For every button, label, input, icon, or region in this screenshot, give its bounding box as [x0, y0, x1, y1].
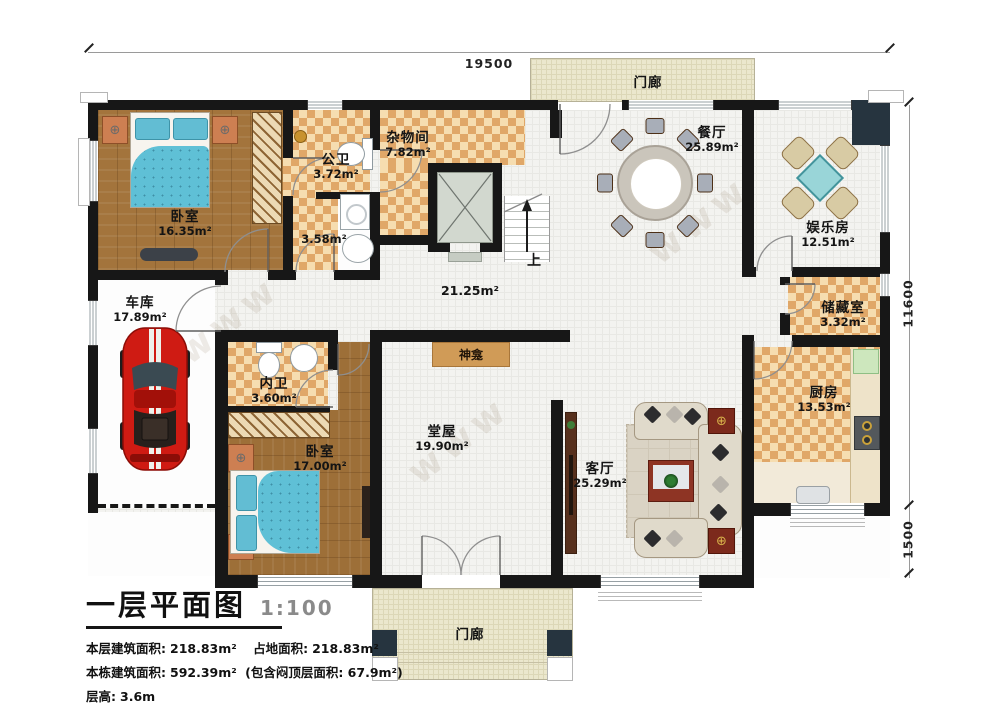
nightstand: ⊕ — [212, 116, 238, 144]
floor-height-value: 3.6m — [120, 689, 155, 704]
elevator-wall — [480, 243, 502, 252]
nightstand-knob: ⊕ — [229, 445, 253, 471]
land-area-label: 占地面积: — [253, 641, 308, 656]
wall — [780, 277, 790, 285]
room-label-bedroom1: 卧室 16.35m² — [130, 210, 240, 238]
burner — [862, 421, 872, 431]
plant — [664, 474, 678, 488]
dining-table — [617, 145, 693, 221]
blanket — [258, 471, 319, 553]
corner-column — [852, 100, 890, 145]
room-area: 25.29m² — [545, 477, 655, 490]
floor-area-label: 本层建筑面积: — [86, 641, 166, 656]
counter-board — [853, 349, 879, 374]
floor-plan: 19500 11600 1500 www www www — [0, 0, 1000, 706]
plan-title: 一层平面图 — [86, 582, 246, 624]
room-label-storage: 储藏室 3.32m² — [788, 301, 898, 329]
total-area-value: 592.39m² — [170, 665, 237, 680]
room-area: 16.35m² — [130, 225, 240, 238]
sink — [290, 344, 318, 372]
room-area: 13.53m² — [769, 401, 879, 414]
room-label-living: 客厅 25.29m² — [545, 462, 655, 490]
wall — [792, 335, 890, 347]
land-area-value: 218.83m² — [312, 641, 379, 656]
wall — [268, 270, 296, 280]
window — [790, 503, 865, 516]
room-area: 19.90m² — [387, 440, 497, 453]
room-name: 客厅 — [545, 462, 655, 477]
room-label-entertainment: 娱乐房 12.51m² — [773, 221, 883, 249]
toilet — [258, 352, 280, 378]
room-label-bedroom2: 卧室 17.00m² — [265, 445, 375, 473]
room-name: 储藏室 — [788, 301, 898, 316]
dimension-height-main: 11600 — [901, 274, 916, 334]
wardrobe — [228, 412, 330, 438]
wall — [228, 330, 338, 342]
window — [880, 145, 890, 233]
window-frame — [80, 92, 108, 103]
dimension-height-porch: 1500 — [901, 512, 916, 568]
pillow — [173, 118, 208, 140]
room-area: 17.89m² — [85, 311, 195, 324]
stairs-up-label: 上 — [520, 254, 548, 270]
window — [778, 100, 852, 110]
elevator-wall — [493, 163, 502, 252]
pillow — [236, 475, 257, 511]
dining-table-top — [630, 158, 682, 210]
title-block: 一层平面图 1:100 本层建筑面积:218.83m² 占地面积:218.83m… — [86, 582, 426, 705]
nightstand: ⊕ — [228, 444, 254, 472]
nightstand: ⊕ — [102, 116, 128, 144]
kitchen-sink — [796, 486, 830, 504]
tv — [362, 486, 370, 538]
garage-door — [98, 504, 215, 508]
room-label-dining: 餐厅 25.89m² — [657, 126, 767, 154]
wall — [334, 270, 380, 280]
room-area: 3.60m² — [219, 392, 329, 405]
wall — [283, 110, 293, 158]
room-name: 堂屋 — [387, 425, 497, 440]
area-row-1: 本层建筑面积:218.83m² 占地面积:218.83m² — [86, 638, 426, 657]
blanket — [131, 146, 209, 207]
window-sill — [598, 592, 702, 604]
room-area: 12.51m² — [773, 236, 883, 249]
room-name: 车库 — [85, 296, 195, 311]
room-name: 门廊 — [593, 76, 703, 91]
chair — [597, 174, 613, 193]
burner — [862, 435, 872, 445]
room-name: 内卫 — [219, 377, 329, 392]
window — [880, 273, 890, 297]
title-underline — [86, 626, 282, 629]
wall — [375, 235, 428, 245]
room-area: 3.58m² — [269, 233, 379, 246]
elevator-car — [437, 172, 493, 243]
area-row-2: 本栋建筑面积:592.39m² (包含闷顶层面积: 67.9m²) — [86, 662, 426, 681]
room-label-bath-annex: 3.58m² — [269, 233, 379, 246]
plant — [567, 421, 575, 429]
floor-area-value: 218.83m² — [170, 641, 237, 656]
elevator-sill — [448, 252, 482, 262]
chair — [697, 174, 713, 193]
room-name: 厨房 — [769, 386, 879, 401]
room-area: 3.32m² — [788, 316, 898, 329]
wall — [88, 270, 225, 280]
room-name: 餐厅 — [657, 126, 767, 141]
dimension-tick — [885, 43, 895, 53]
shrine-label: 神龛 — [459, 346, 483, 363]
porch-column-base — [547, 657, 573, 681]
title-row: 一层平面图 1:100 — [86, 582, 426, 624]
wall — [550, 110, 562, 138]
side-table-knob: ⊕ — [709, 409, 734, 433]
room-name: 娱乐房 — [773, 221, 883, 236]
room-area: 25.89m² — [657, 141, 767, 154]
wall — [370, 192, 380, 270]
window — [88, 428, 98, 474]
window-frame — [78, 138, 90, 206]
window — [628, 100, 714, 110]
porch-column — [547, 630, 572, 656]
wall — [382, 330, 570, 342]
wall — [742, 267, 756, 277]
dimension-line-top — [88, 52, 890, 53]
room-area: 3.72m² — [281, 168, 391, 181]
room-area: 7.82m² — [353, 146, 463, 159]
nightstand-knob: ⊕ — [103, 117, 127, 143]
side-table-knob: ⊕ — [709, 529, 734, 553]
stove — [854, 416, 880, 450]
window — [307, 100, 343, 110]
room-area: 17.00m² — [265, 460, 375, 473]
side-table: ⊕ — [708, 528, 735, 554]
side-table: ⊕ — [708, 408, 735, 434]
room-label-utility: 杂物间 7.82m² — [353, 131, 463, 159]
wall — [215, 330, 228, 588]
wall — [742, 503, 754, 588]
wall — [742, 335, 754, 503]
room-label-garage: 车库 17.89m² — [85, 296, 195, 324]
window — [600, 575, 700, 588]
floor-height-label: 层高: — [86, 689, 116, 704]
room-label-main-hall: 堂屋 19.90m² — [387, 425, 497, 453]
wall — [328, 342, 338, 370]
wardrobe — [252, 112, 282, 224]
room-label-hall-center: 21.25m² — [415, 284, 525, 298]
room-label-porch-top: 门廊 — [593, 76, 703, 91]
light-fixture — [294, 130, 307, 143]
elevator-wall — [428, 243, 450, 252]
washer-drum — [346, 204, 367, 225]
window-frame — [868, 90, 904, 103]
total-area-note: (包含闷顶层面积: 67.9m²) — [245, 665, 403, 680]
car — [120, 326, 190, 472]
room-name: 门廊 — [415, 628, 525, 643]
chair — [646, 232, 665, 248]
room-area: 21.25m² — [415, 284, 525, 298]
total-area-label: 本栋建筑面积: — [86, 665, 166, 680]
washing-machine — [340, 194, 370, 230]
elevator-wall — [428, 163, 437, 252]
height-row: 层高:3.6m — [86, 686, 426, 705]
bedroom2-entry-floor — [338, 342, 370, 410]
outside-patch — [88, 512, 216, 576]
room-name: 卧室 — [130, 210, 240, 225]
room-label-porch-bottom: 门廊 — [415, 628, 525, 643]
shrine: 神龛 — [432, 342, 510, 367]
elevator-wall — [428, 163, 502, 172]
bed — [230, 470, 320, 554]
wall — [792, 267, 890, 277]
pillow — [135, 118, 170, 140]
nightstand-knob: ⊕ — [213, 117, 237, 143]
dimension-width: 19500 — [439, 56, 539, 71]
bed — [130, 112, 210, 208]
window-sill — [790, 518, 865, 528]
room-name: 杂物间 — [353, 131, 463, 146]
room-label-kitchen: 厨房 13.53m² — [769, 386, 879, 414]
plan-scale: 1:100 — [260, 596, 334, 620]
room-label-inner-bath: 内卫 3.60m² — [219, 377, 329, 405]
pillow — [236, 515, 257, 551]
room-name: 卧室 — [265, 445, 375, 460]
rug — [140, 248, 198, 261]
